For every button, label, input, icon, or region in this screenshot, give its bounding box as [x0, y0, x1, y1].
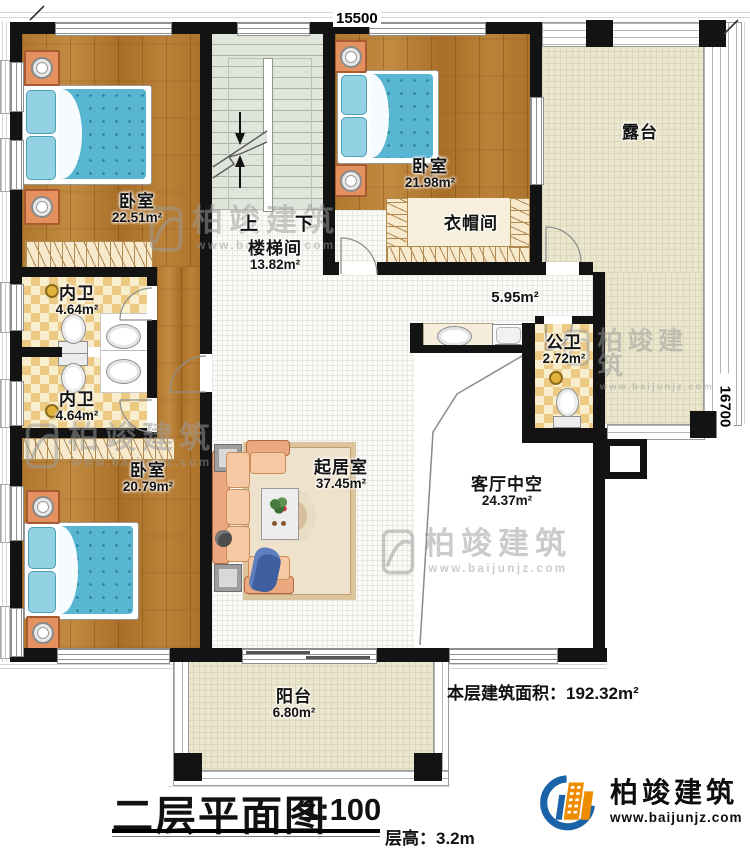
sliding-door-panel: [246, 651, 310, 654]
sofa-cushion: [226, 452, 250, 488]
window: [10, 140, 24, 190]
room-label-cloakroom: 衣帽间: [444, 215, 498, 233]
wall: [10, 22, 22, 662]
toilet: [61, 363, 86, 393]
door-opening: [147, 286, 157, 320]
cloakroom-closet: [510, 198, 530, 248]
terrace-column: [690, 411, 717, 438]
stair-stringer: [263, 58, 273, 212]
cup-icon: [281, 521, 286, 526]
window: [57, 648, 170, 664]
balcony-post: [414, 753, 442, 781]
room-label-terrace: 露台: [622, 124, 658, 142]
room-label-bedroom3: 卧室 20.79m²: [123, 462, 173, 494]
toilet: [61, 314, 86, 344]
room-name: 露台: [622, 124, 658, 142]
watermark-text: 柏竣建筑: [192, 205, 340, 236]
room-label-balcony: 阳台 6.80m²: [273, 688, 316, 720]
floor-plan: 卧室 22.51m² 楼梯间 13.82m² 上 下 卧室 21.98m² 衣帽…: [0, 0, 750, 851]
wardrobe: [25, 241, 153, 269]
window: [10, 608, 24, 657]
brand-url: www.baijunjz.com: [610, 810, 743, 825]
room-name: 起居室: [314, 459, 368, 477]
lamp-icon: [31, 57, 53, 79]
window: [237, 22, 310, 36]
eave-line: [744, 22, 745, 424]
watermark-logo-icon: [24, 422, 60, 470]
nightstand: [24, 50, 60, 86]
terrace-column: [586, 20, 613, 47]
watermark: 柏竣建筑 www.baijunjz.com: [24, 422, 216, 470]
dimension-right: 16700: [717, 374, 734, 440]
floor-area-note: 本层建筑面积：192.32m²: [447, 679, 639, 704]
room-area: 22.51m²: [112, 211, 162, 225]
wall: [10, 347, 62, 357]
pillow: [26, 90, 56, 134]
title-underline: [112, 836, 380, 837]
armchair-cushion: [250, 452, 286, 474]
room-name: 卧室: [123, 462, 173, 480]
door-opening: [546, 262, 579, 275]
flue-niche: [603, 439, 647, 479]
room-label-public-bath: 公卫 2.72m²: [543, 334, 586, 366]
room-label-living-void: 客厅中空 24.37m²: [471, 476, 543, 508]
watermark-logo-icon: [380, 528, 416, 576]
suite-corridor-floor: [157, 267, 200, 438]
pillow: [26, 136, 56, 180]
room-label-bath1: 内卫 4.64m²: [56, 285, 99, 317]
room-label-stairwell: 楼梯间 13.82m²: [248, 240, 302, 272]
window: [55, 22, 172, 36]
brand-name: 柏竣建筑: [610, 779, 743, 807]
nightstand: [334, 164, 367, 197]
window: [449, 648, 558, 664]
side-table: [214, 564, 242, 592]
room-area: 20.79m²: [123, 480, 173, 494]
cup-icon: [272, 521, 277, 526]
lamp-icon: [31, 196, 53, 218]
watermark-text: 柏竣建筑: [424, 528, 572, 559]
room-name: 衣帽间: [444, 215, 498, 233]
floor-area-value: 192.32m²: [566, 684, 639, 703]
room-name: 楼梯间: [248, 240, 302, 258]
balcony-post: [174, 753, 202, 781]
room-area: 24.37m²: [471, 494, 543, 508]
window: [10, 381, 24, 426]
door-opening: [544, 316, 572, 324]
room-area: 6.80m²: [273, 706, 316, 720]
toilet: [556, 388, 579, 417]
pillow: [28, 571, 56, 613]
sink: [106, 359, 141, 384]
room-area: 2.72m²: [543, 352, 586, 366]
room-name: 内卫: [56, 285, 99, 303]
ceiling-lamp-icon: [549, 371, 563, 385]
eave-line: [2, 22, 3, 662]
brand-logo-icon: [540, 772, 602, 832]
wall: [410, 345, 525, 353]
door-opening: [339, 262, 377, 275]
sliding-door-panel: [306, 656, 370, 659]
pillow: [341, 117, 367, 157]
sofa-cushion: [226, 489, 250, 525]
watermark-url: www.baijunjz.com: [597, 382, 716, 392]
room-area: 4.64m²: [56, 409, 99, 423]
wall: [10, 267, 157, 277]
terrace-column: [699, 20, 726, 47]
room-label-living-room: 起居室 37.45m²: [314, 459, 368, 491]
lamp-icon: [340, 46, 362, 68]
room-area: 4.64m²: [56, 303, 99, 317]
room-name: 阳台: [273, 688, 316, 706]
nightstand: [26, 616, 60, 650]
brand-logo: 柏竣建筑 www.baijunjz.com: [540, 772, 743, 832]
watermark: 柏竣建筑 www.baijunjz.com: [380, 528, 572, 576]
room-name: 客厅中空: [471, 476, 543, 494]
window: [10, 284, 24, 331]
room-area: 13.82m²: [248, 258, 302, 272]
room-label-hall-area: 5.95m²: [491, 290, 539, 306]
room-area: 21.98m²: [405, 176, 455, 190]
room-label-bedroom1: 卧室 22.51m²: [112, 193, 162, 225]
dimension-top: 15500: [333, 10, 381, 27]
lamp-icon: [340, 170, 362, 192]
window: [10, 62, 24, 112]
wall: [200, 267, 212, 438]
wall: [522, 323, 535, 443]
title-underline: [112, 829, 380, 833]
vanity-divider: [100, 350, 147, 351]
eave-line: [6, 22, 7, 662]
terrace-floor: [542, 45, 703, 272]
pillow: [341, 75, 367, 115]
floor-lamp-icon: [215, 530, 232, 547]
plant-icon: [268, 496, 288, 514]
toilet-tank: [553, 416, 581, 428]
sheet-title: 二层平面图: [112, 782, 327, 842]
stair-down-label: 下: [295, 210, 313, 236]
room-name: 公卫: [543, 334, 586, 352]
room-area: 5.95m²: [491, 290, 539, 306]
lamp-icon: [32, 622, 54, 644]
sheet-scale: 1:100: [302, 792, 381, 828]
room-label-bedroom2: 卧室 21.98m²: [405, 158, 455, 190]
watermark-text: 柏竣建筑: [68, 422, 216, 453]
eave-line: [445, 664, 607, 665]
watermark-text: 柏竣建筑: [597, 328, 716, 379]
door-opening: [200, 354, 212, 392]
window: [10, 486, 24, 541]
nightstand: [26, 490, 60, 524]
eave-line: [445, 668, 607, 669]
room-area: 37.45m²: [314, 477, 368, 491]
room-name: 内卫: [56, 391, 99, 409]
sink: [437, 326, 472, 347]
room-name: 卧室: [112, 193, 162, 211]
stair-up-label: 上: [240, 210, 258, 236]
nightstand: [334, 40, 367, 73]
nightstand: [24, 189, 60, 225]
pillow: [28, 527, 56, 569]
lamp-icon: [32, 496, 54, 518]
window: [530, 97, 544, 185]
eave-line: [0, 668, 175, 669]
floor-height-note: 层高：3.2m: [385, 824, 475, 849]
floor-area-label: 本层建筑面积：: [447, 684, 566, 703]
sink: [106, 324, 141, 349]
window: [369, 22, 486, 36]
wall: [522, 428, 607, 443]
room-name: 卧室: [405, 158, 455, 176]
eave-line: [0, 664, 175, 665]
watermark-url: www.baijunjz.com: [424, 563, 572, 575]
room-label-bath2: 内卫 4.64m²: [56, 391, 99, 423]
